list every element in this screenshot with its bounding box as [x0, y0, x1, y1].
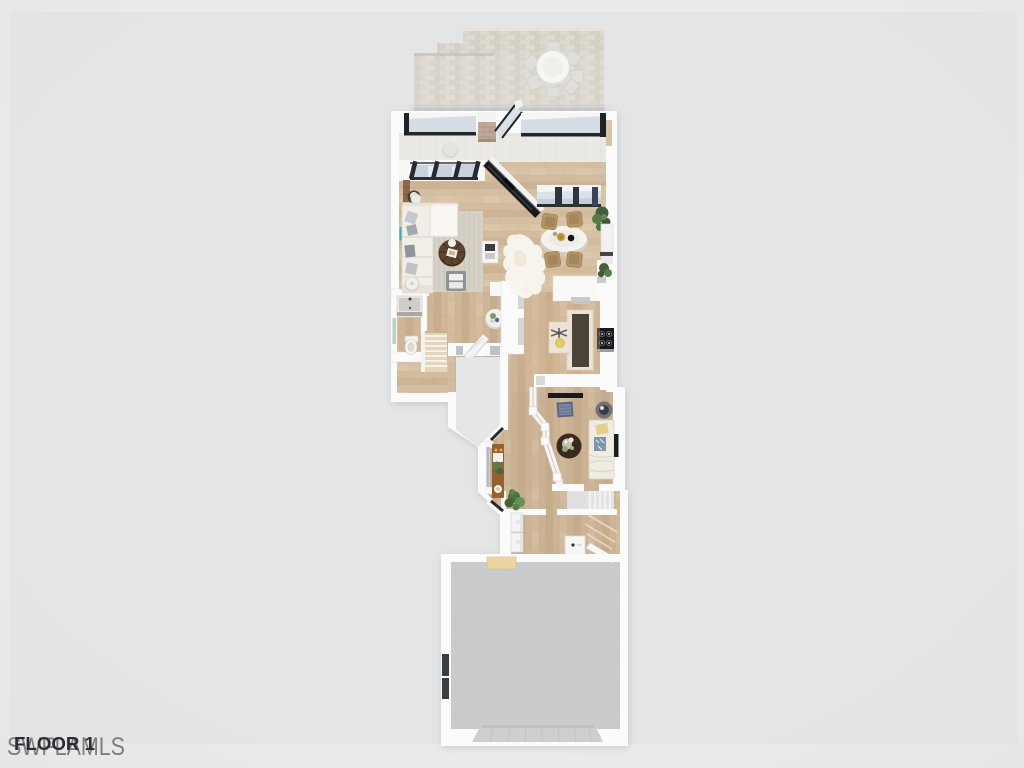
svg-text:FLOOR 1: FLOOR 1 — [14, 733, 95, 754]
